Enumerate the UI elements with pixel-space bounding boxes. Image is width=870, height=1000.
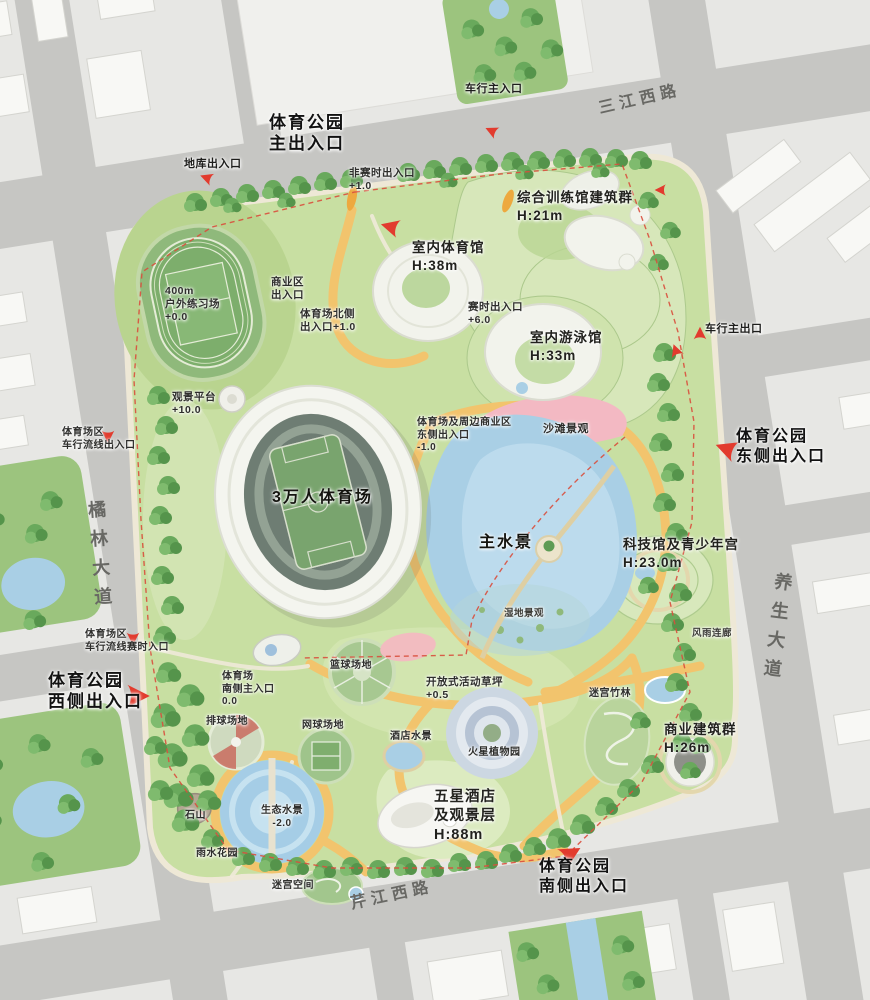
label-south-entrance: 体育公园 南侧出入口 (539, 857, 629, 897)
label-maze-space: 迷宫空间 (272, 880, 314, 893)
label-main-water: 主水景 (479, 533, 533, 553)
label-beach: 沙滩景观 (543, 423, 589, 437)
label-stadium-east-entrance: 体育场及周边商业区 东侧出入口 -1.0 (417, 417, 512, 455)
label-practice-field: 400m 户外练习场 +0.0 (165, 285, 220, 324)
label-non-match-entrance: 非赛时出入口 +1.0 (349, 167, 415, 193)
label-west-flow-race-entrance: 体育场区 车行流线赛时入口 (85, 629, 169, 654)
label-indoor-pool: 室内游泳馆 H:33m (530, 329, 603, 364)
site-plan: 三江西路 橘林大道 养生大道 芹江西路 体育公园 主出入口 车行主入口 地库出入… (0, 0, 870, 1000)
label-west-flow-entrance: 体育场区 车行流线出入口 (62, 427, 136, 452)
label-west-entrance: 体育公园 西侧出入口 (48, 670, 143, 713)
label-commercial: 商业建筑群 H:26m (664, 721, 737, 756)
label-wetland: 湿地景观 (504, 608, 544, 620)
label-view-platform: 观景平台 +10.0 (172, 391, 216, 417)
label-indoor-gym: 室内体育馆 H:38m (412, 239, 485, 274)
label-east-entrance: 体育公园 东侧出入口 (736, 427, 826, 467)
label-match-entrance: 赛时出入口 +6.0 (468, 301, 523, 327)
hotel-pond (384, 741, 424, 771)
label-business-entrance: 商业区 出入口 (271, 276, 304, 302)
label-stadium: 3万人体育场 (272, 488, 373, 508)
label-basketball-court: 篮球场地 (330, 660, 372, 673)
label-tennis-court: 网球场地 (302, 720, 344, 733)
label-bamboo-maze: 迷宫竹林 (589, 688, 631, 701)
label-rain-garden: 雨水花园 (196, 848, 238, 861)
label-science-museum: 科技馆及青少年宫 H:23.0m (623, 536, 739, 571)
label-main-entrance: 体育公园 主出入口 (252, 112, 362, 155)
label-garage-entrance: 地库出入口 (184, 158, 242, 172)
label-car-main-exit: 车行主出口 (705, 323, 763, 337)
label-corridor: 风雨连廊 (692, 628, 732, 640)
label-mars-garden: 火星植物园 (468, 747, 521, 760)
label-stadium-south-entrance: 体育场 南侧主入口 0.0 (222, 671, 275, 709)
site-plan-artwork (0, 0, 870, 1000)
view-platform-structure (219, 386, 245, 412)
label-car-main-entrance: 车行主入口 (465, 83, 523, 97)
label-stadium-north-entrance: 体育场北侧 出入口+1.0 (300, 308, 356, 334)
label-eco-water: 生态水景 -2.0 (252, 805, 312, 830)
label-stone-hill: 石山 (185, 810, 206, 823)
label-hotel-water: 酒店水景 (390, 731, 432, 744)
label-hotel: 五星酒店 及观景层 H:88m (434, 788, 496, 845)
label-lawn: 开放式活动草坪 +0.5 (426, 676, 503, 702)
label-training-complex: 综合训练馆建筑群 H:21m (517, 189, 633, 224)
label-volleyball-court: 排球场地 (206, 716, 248, 729)
